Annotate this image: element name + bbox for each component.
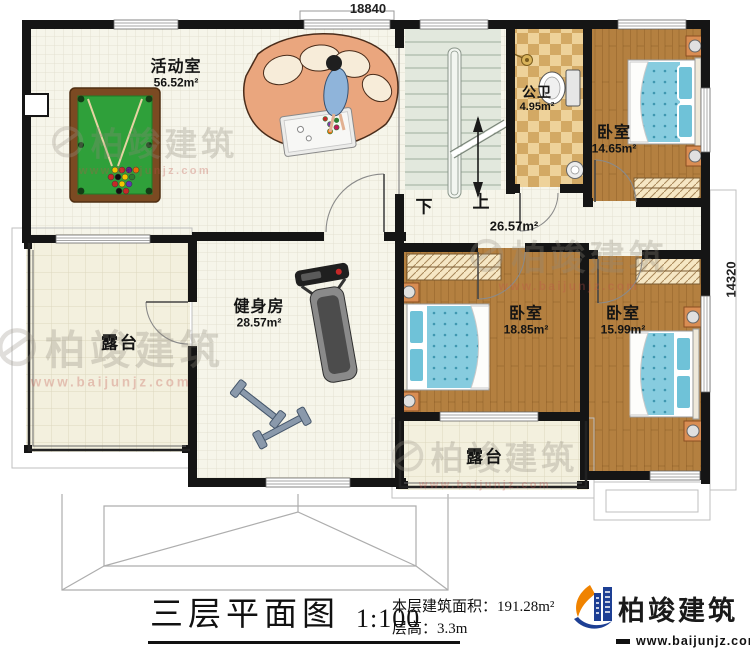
company-logo-icon	[570, 583, 614, 633]
plan-title: 三层平面图	[150, 599, 340, 632]
title-underline	[148, 641, 460, 644]
stairs-up-label: 上	[473, 192, 490, 211]
pool-table	[70, 88, 160, 202]
dimension-right: 14320	[724, 248, 739, 312]
dimension-top: 18840	[340, 1, 396, 16]
room-label-bedroom-mid: 卧室 18.85m²	[504, 305, 549, 336]
washbasin	[567, 162, 584, 179]
roof-outline	[62, 494, 448, 590]
bed-bedroom-top	[628, 58, 701, 146]
room-label-bedroom-right: 卧室 15.99m²	[601, 305, 646, 336]
floor-area-line: 本层建筑面积：191.28m²	[392, 597, 554, 619]
bed-bedroom-mid	[401, 304, 489, 390]
room-label-hall-area: 26.57m²	[490, 220, 538, 235]
title-block: 三层平面图 1:100	[150, 599, 420, 632]
room-label-bedroom-top: 卧室 14.65m²	[592, 124, 637, 155]
company-url: www.baijunjz.com	[636, 634, 750, 648]
wardrobe-bedroom-mid	[407, 254, 501, 280]
room-label-activity: 活动室 56.52m²	[150, 58, 201, 89]
company-logo: 柏竣建筑 www.baijunjz.com	[570, 583, 746, 648]
wardrobe-bedroom-top	[634, 178, 700, 199]
room-label-terrace-left: 露台	[101, 333, 139, 352]
room-label-gym: 健身房 28.57m²	[233, 298, 284, 329]
stairs-down-label: 下	[416, 197, 433, 216]
bed-bedroom-right	[630, 329, 699, 419]
logo-bar-left	[616, 639, 630, 644]
floor-plan-page: 18840 14320 活动室 56.52m² 公卫 4.95m² 卧室 14.…	[0, 0, 750, 653]
wardrobe-bedroom-right	[636, 258, 700, 284]
company-url-row: www.baijunjz.com	[616, 634, 746, 648]
company-name: 柏竣建筑	[618, 589, 738, 628]
plan-info: 本层建筑面积：191.28m² 层高：3.3m	[392, 597, 554, 641]
floor-height-line: 层高：3.3m	[392, 619, 554, 641]
room-label-terrace-bottom: 露台	[466, 447, 504, 466]
room-label-bathroom: 公卫 4.95m²	[520, 85, 555, 113]
